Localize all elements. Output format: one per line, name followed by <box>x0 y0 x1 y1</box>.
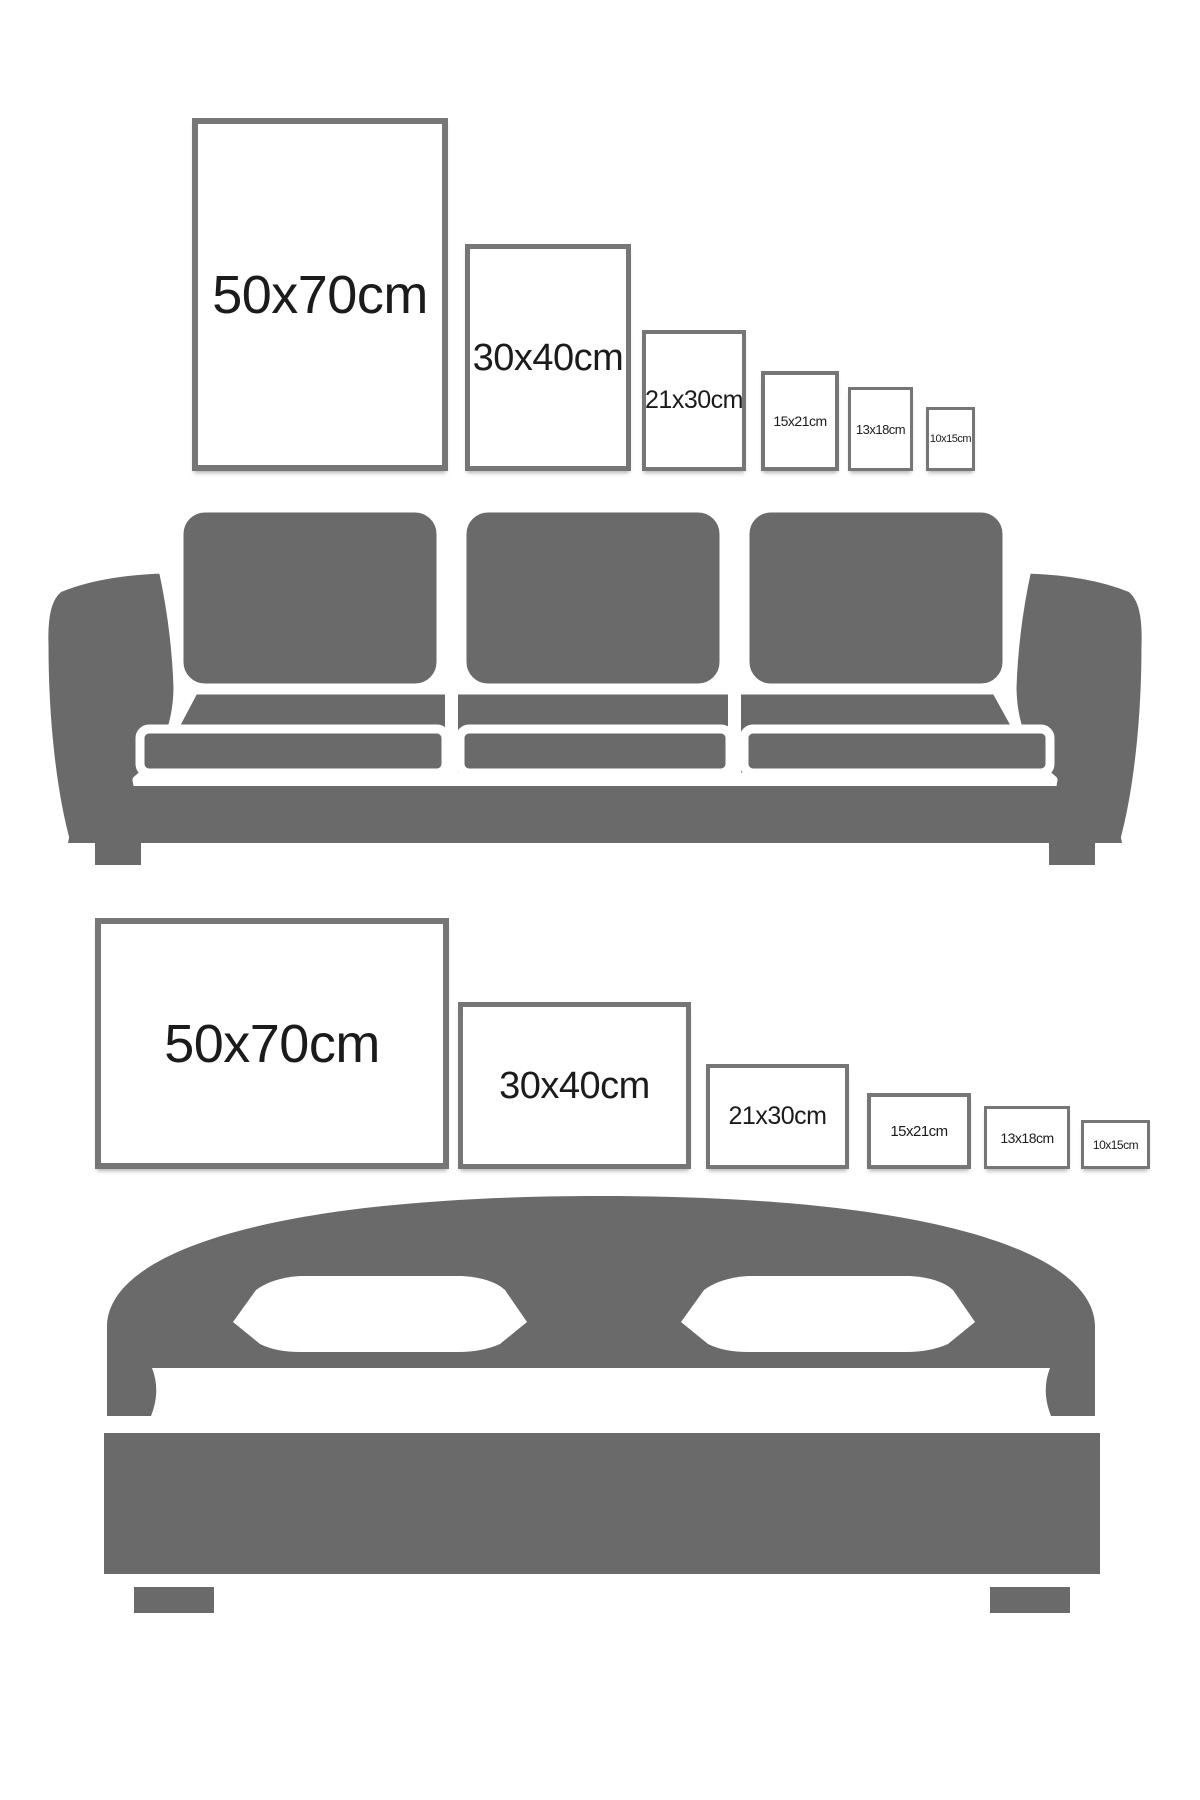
frame-size-label: 50x70cm <box>164 1017 380 1071</box>
frame-landscape-50x70: 50x70cm <box>95 918 449 1169</box>
sofa-right-foot <box>1049 841 1095 865</box>
bed-right-foot <box>990 1587 1070 1613</box>
frame-size-label: 21x30cm <box>645 388 743 413</box>
bed-base <box>104 1433 1100 1574</box>
sofa-illustration <box>0 440 1200 880</box>
frame-portrait-50x70: 50x70cm <box>192 118 448 471</box>
sofa-back-cushion-middle <box>462 508 724 688</box>
sofa-left-foot <box>95 841 141 865</box>
frame-size-label: 13x18cm <box>1000 1131 1053 1145</box>
sofa-seat-cushion-right <box>744 729 1050 773</box>
frame-landscape-10x15: 10x15cm <box>1081 1120 1150 1169</box>
frame-size-label: 13x18cm <box>856 423 905 436</box>
frame-portrait-30x40: 30x40cm <box>465 244 631 471</box>
frame-size-label: 10x15cm <box>1093 1139 1138 1151</box>
poster-size-guide: 50x70cm 30x40cm 21x30cm 15x21cm 13x18cm … <box>0 0 1200 1800</box>
frame-size-label: 15x21cm <box>890 1124 947 1139</box>
frame-size-label: 30x40cm <box>473 339 624 377</box>
sofa-base <box>68 786 1122 843</box>
bed-pillow-right <box>681 1276 975 1352</box>
bed-illustration <box>0 1180 1200 1640</box>
frame-landscape-30x40: 30x40cm <box>458 1002 691 1169</box>
frame-landscape-21x30: 21x30cm <box>706 1064 849 1169</box>
sofa-seat-cushion-middle <box>460 729 730 773</box>
frame-size-label: 30x40cm <box>499 1067 650 1105</box>
bed-left-foot <box>134 1587 214 1613</box>
sofa-back-cushion-right <box>745 508 1007 688</box>
frame-size-label: 21x30cm <box>729 1104 827 1129</box>
bed-pillow-left <box>233 1276 527 1352</box>
frame-landscape-15x21: 15x21cm <box>867 1093 971 1169</box>
frame-size-label: 50x70cm <box>212 268 428 322</box>
frame-landscape-13x18: 13x18cm <box>984 1106 1070 1169</box>
sofa-back-cushion-left <box>179 508 441 688</box>
frame-size-label: 15x21cm <box>773 414 826 428</box>
sofa-seat-cushion-left <box>140 729 446 773</box>
